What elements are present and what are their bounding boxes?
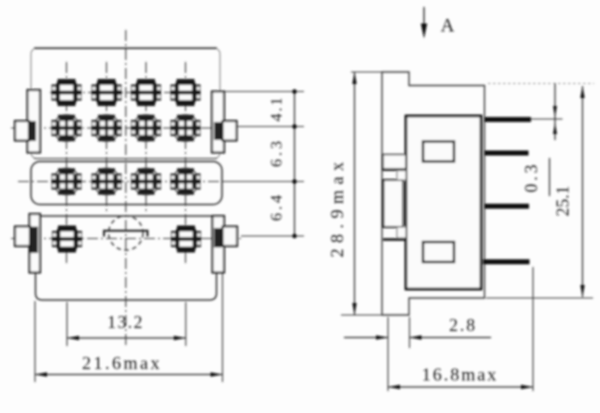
- svg-text:6.4: 6.4: [269, 192, 286, 221]
- svg-text:28.9max: 28.9max: [327, 157, 347, 258]
- svg-text:13.2: 13.2: [107, 312, 144, 332]
- svg-text:16.8max: 16.8max: [422, 365, 499, 385]
- svg-text:0.3: 0.3: [521, 162, 541, 193]
- svg-text:21.6max: 21.6max: [82, 353, 162, 373]
- svg-text:2.8: 2.8: [449, 315, 477, 335]
- svg-text:A: A: [441, 16, 455, 37]
- svg-text:25.1: 25.1: [553, 186, 573, 217]
- svg-text:4.1: 4.1: [269, 96, 286, 122]
- svg-text:6.3: 6.3: [269, 138, 286, 167]
